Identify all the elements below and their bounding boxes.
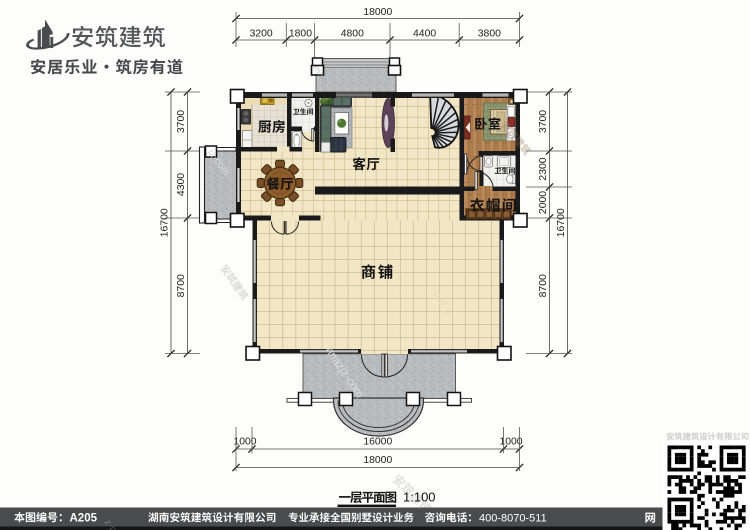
svg-text:400-8070-511: 400-8070-511 bbox=[479, 512, 547, 524]
svg-text:2300: 2300 bbox=[538, 157, 549, 180]
svg-text:4800: 4800 bbox=[341, 29, 364, 40]
svg-text:3700: 3700 bbox=[538, 110, 549, 133]
svg-text:8700: 8700 bbox=[176, 274, 187, 297]
svg-text:4300: 4300 bbox=[176, 173, 187, 196]
svg-text:4400: 4400 bbox=[413, 29, 436, 40]
svg-text:16700: 16700 bbox=[556, 208, 567, 237]
svg-text:3200: 3200 bbox=[250, 29, 273, 40]
svg-text:18000: 18000 bbox=[363, 455, 392, 466]
svg-text:1:100: 1:100 bbox=[403, 490, 436, 505]
svg-text:18000: 18000 bbox=[363, 7, 392, 18]
svg-text:1800: 1800 bbox=[289, 29, 312, 40]
svg-text:3700: 3700 bbox=[176, 110, 187, 133]
svg-text:1000: 1000 bbox=[233, 437, 256, 448]
svg-text:A205: A205 bbox=[70, 512, 98, 524]
svg-text:16000: 16000 bbox=[363, 437, 392, 448]
svg-text:16700: 16700 bbox=[160, 208, 171, 237]
svg-text:3800: 3800 bbox=[478, 29, 501, 40]
svg-text:2000: 2000 bbox=[538, 191, 549, 214]
svg-text:8700: 8700 bbox=[538, 274, 549, 297]
